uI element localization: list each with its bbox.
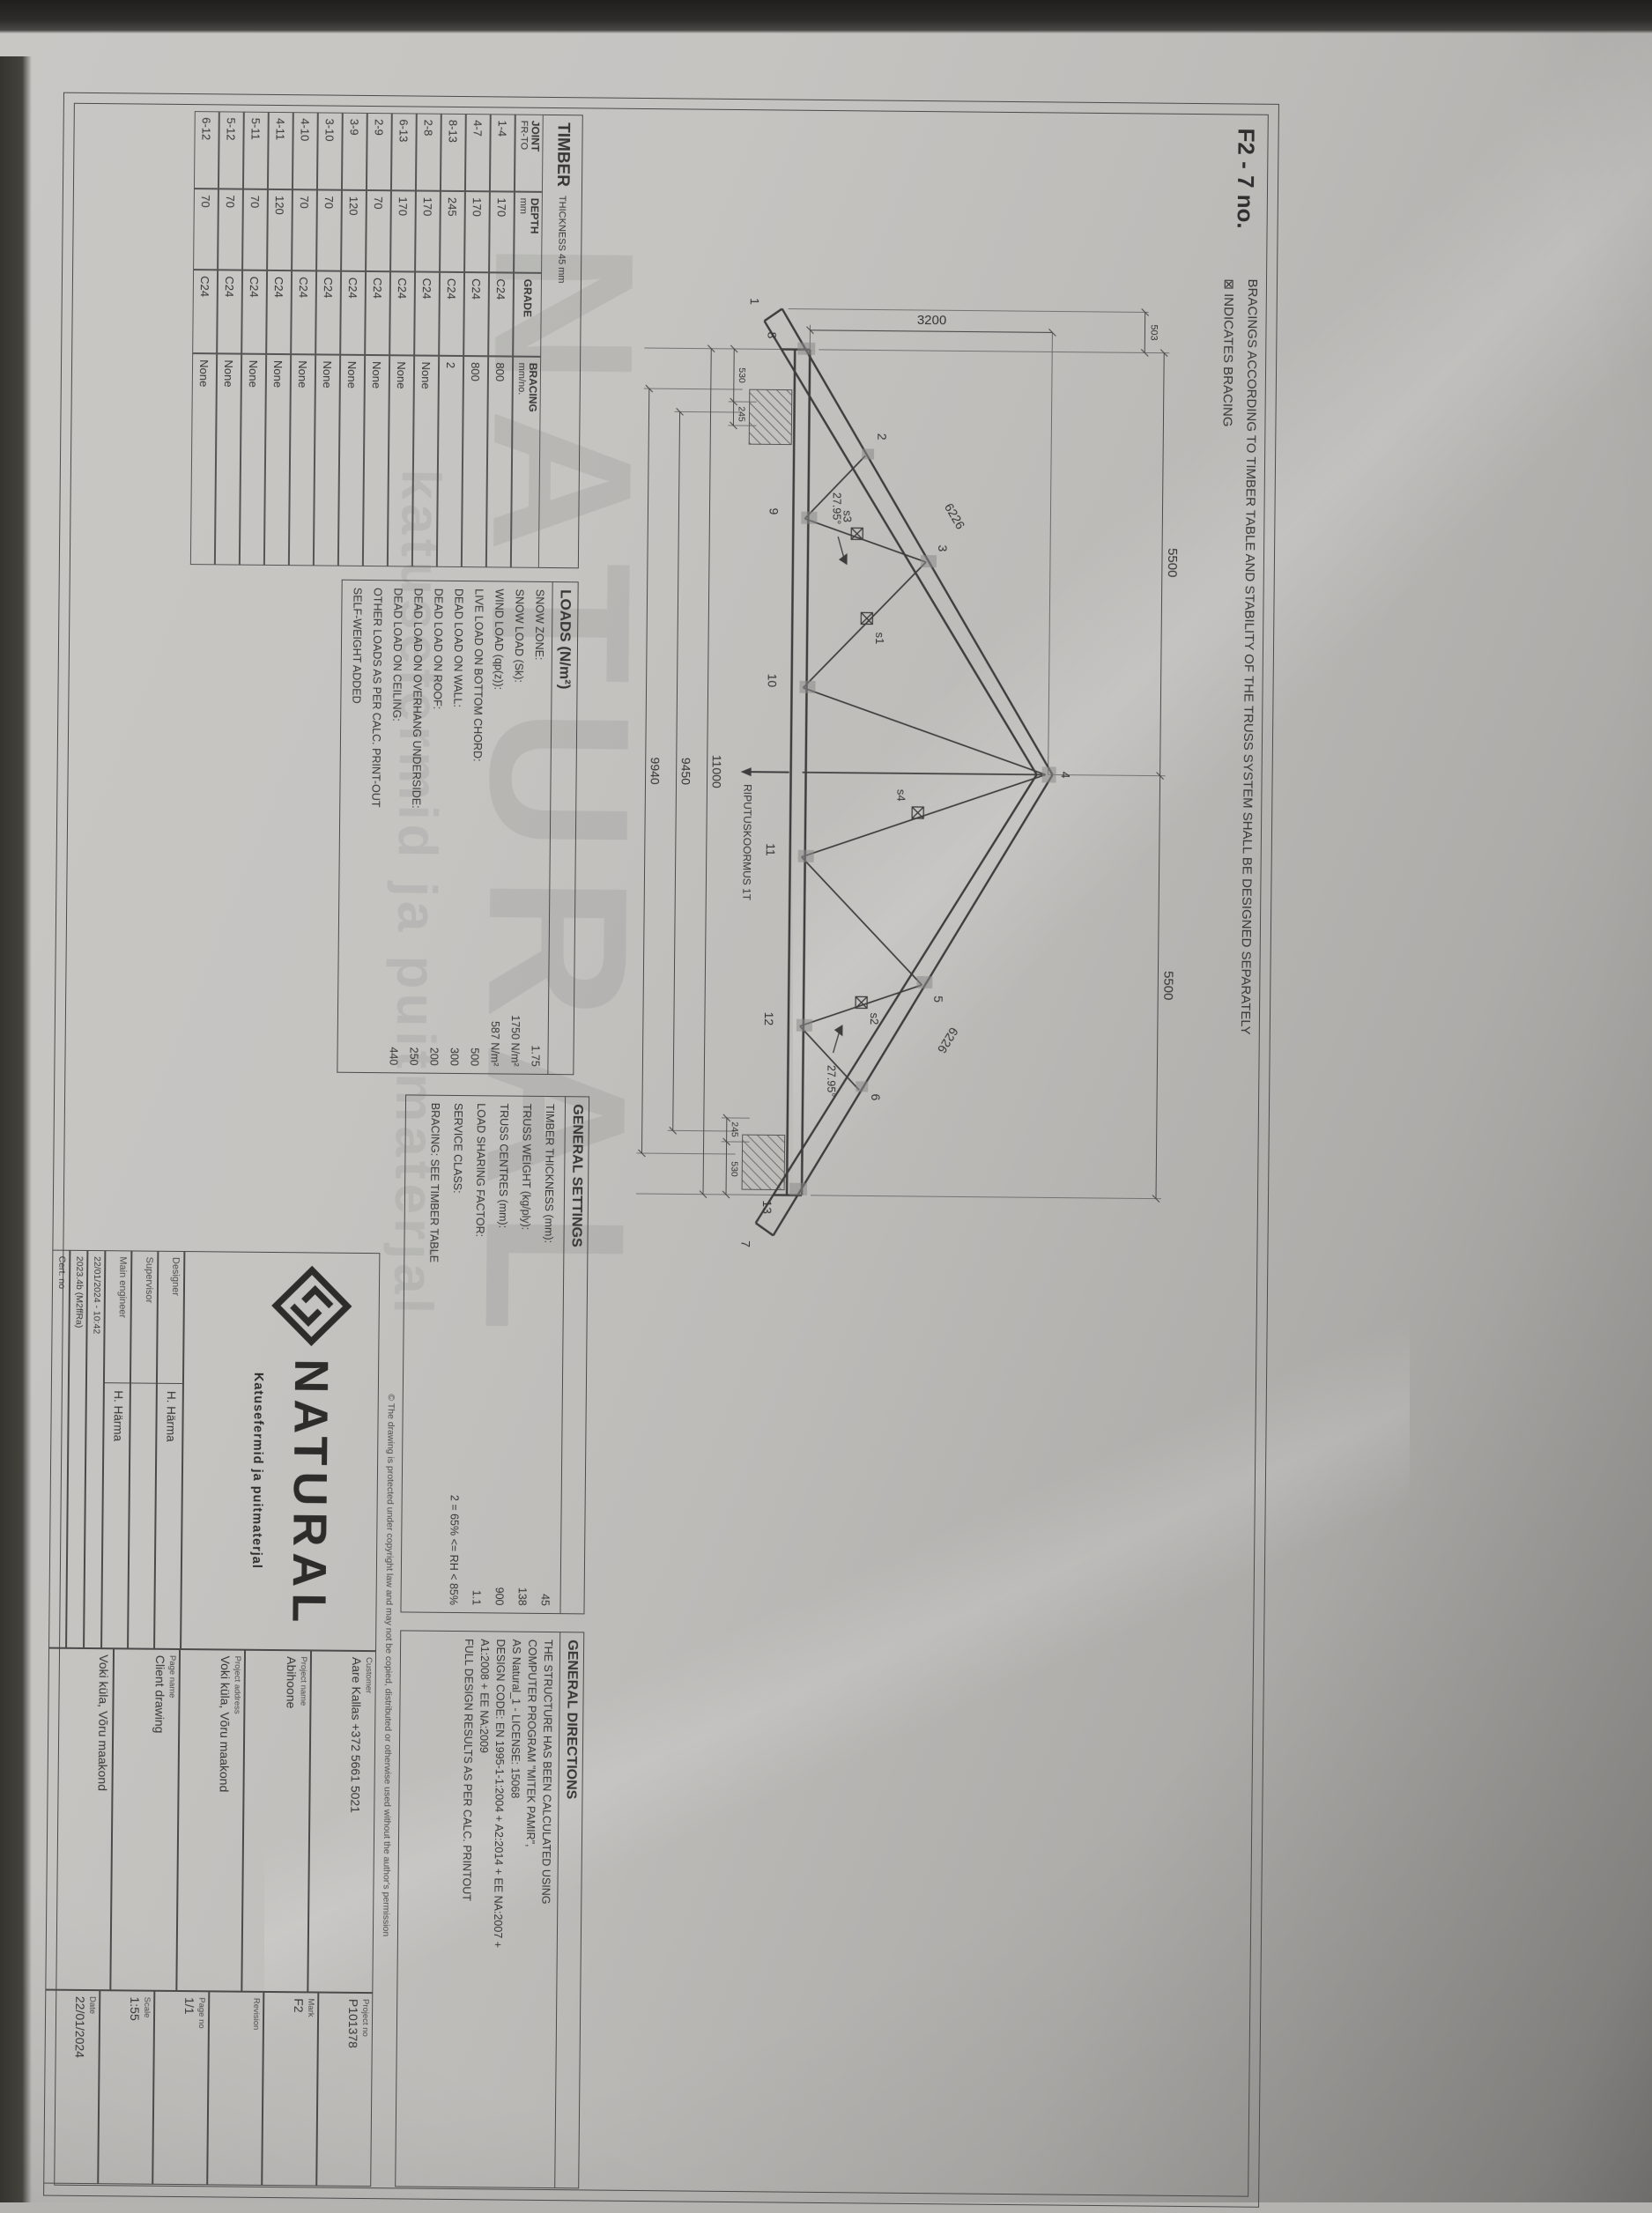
timber-row-grade: C24	[266, 270, 292, 354]
timber-row-bracing: None	[388, 355, 414, 566]
timber-row-grade: C24	[315, 270, 341, 354]
joint-4: 4	[1059, 772, 1073, 779]
timber-row-joint: 6-12	[194, 111, 219, 189]
general-settings-title: GENERAL SETTINGS	[567, 1104, 585, 1247]
timber-row-grade: C24	[217, 270, 242, 353]
loads-row-label: SNOW LOAD (Sk):	[508, 589, 530, 683]
loads-row-value: 200	[423, 1047, 443, 1066]
general-settings-label: TRUSS CENTRES (mm):	[492, 1103, 515, 1228]
timber-row-depth: 120	[341, 190, 367, 271]
timber-row-joint: 6-13	[391, 113, 417, 190]
timber-row-joint: 2-8	[416, 114, 441, 191]
background-table-edge-top	[0, 0, 1652, 33]
loads-row-label: SELF-WEIGHT ADDED	[345, 588, 367, 704]
title-block-field: Project noP101378	[316, 1993, 373, 2187]
general-settings-label: TRUSS WEIGHT (kg/ply):	[515, 1104, 538, 1231]
timber-row-bracing: None	[215, 353, 241, 565]
joint-7: 7	[738, 1240, 752, 1247]
field-value: 1/1	[180, 1997, 196, 2179]
general-settings-row: TIMBER THICKNESS (mm):45	[534, 1104, 561, 1606]
natural-logo-icon	[270, 1265, 352, 1347]
timber-row-depth: 70	[366, 190, 391, 271]
dim-overhang: 503	[1148, 324, 1159, 340]
loads-row-label: LIVE LOAD ON BOTTOM CHORD:	[467, 588, 489, 762]
general-settings-value: 1.1	[465, 1590, 488, 1606]
timber-table: TIMBER THICKNESS 45 mm JOINTFR-TO DEPTHm…	[190, 111, 583, 568]
title-block-brand: NATURAL	[281, 1358, 338, 1629]
staff-label: Main engineer	[105, 1251, 130, 1383]
timber-row-joint: 2-9	[367, 113, 392, 190]
general-settings-row: LOAD SHARING FACTOR:1.1	[465, 1103, 493, 1605]
title-block-staff-row: DesignerH. Härma	[154, 1251, 184, 1649]
joint-13: 13	[760, 1200, 774, 1214]
loads-row-label: DEAD LOAD ON ROOF:	[426, 588, 448, 710]
timber-row-grade: C24	[291, 270, 316, 354]
angle-arrows	[833, 537, 848, 1053]
timber-row-depth: 170	[464, 191, 490, 272]
field-label: Date	[85, 1996, 97, 2178]
joint-5: 5	[931, 995, 945, 1003]
dimension-lines	[638, 304, 1168, 1203]
col-header-bracing: BRACINGmm/no.	[511, 357, 541, 568]
dim-half-span-left: 5500	[1165, 548, 1180, 578]
field-value: Aare Kallas +372 5661 5021	[345, 1657, 364, 1987]
field-value: 22/01/2024	[70, 1996, 87, 2178]
timber-row-depth: 70	[242, 189, 268, 270]
field-label: Page no	[195, 1997, 206, 2179]
staff-value: H. Härma	[157, 1384, 182, 1449]
timber-row-grade: C24	[488, 272, 514, 356]
timber-row-depth: 170	[415, 191, 441, 272]
timber-row-bracing: None	[314, 354, 340, 566]
truss-webs	[799, 455, 1048, 1092]
timber-row-depth: 245	[440, 191, 465, 272]
general-directions-table: GENERAL DIRECTIONS THE STRUCTURE HAS BEE…	[395, 1630, 584, 2188]
title-block-field: Page no1/1	[152, 1991, 209, 2186]
loads-row-label: DEAD LOAD ON CEILING:	[386, 588, 407, 722]
timber-row-grade: C24	[365, 271, 390, 355]
joint-s4: s4	[894, 789, 907, 802]
loads-title: LOADS (N/m²)	[556, 589, 574, 690]
dim-half-span-right: 5500	[1160, 971, 1175, 1001]
general-settings-value: 900	[488, 1587, 511, 1605]
joint-1: 1	[748, 298, 762, 305]
timber-row-joint: 5-12	[219, 111, 244, 189]
timber-row-bracing: None	[338, 355, 365, 566]
timber-row-grade: C24	[241, 270, 267, 354]
loads-row-value: 300	[443, 1047, 463, 1066]
dim-heel-right-a: 245	[730, 1121, 740, 1137]
field-value: Abihoone	[280, 1656, 299, 1986]
dim-chord-left: 6226	[942, 500, 968, 531]
timber-row-depth: 70	[193, 189, 219, 270]
timber-row-joint: 4-7	[465, 114, 491, 191]
title-block-field: Project addressVoki küla, Võru maakond	[176, 1649, 245, 1992]
timber-row-bracing: None	[289, 354, 315, 566]
timber-row-bracing: None	[190, 353, 217, 565]
title-block-field: CustomerAare Kallas +372 5661 5021	[307, 1650, 376, 1993]
staff-label: Supervisor	[131, 1251, 157, 1383]
loads-row-label: DEAD LOAD ON WALL:	[447, 588, 468, 707]
drawing-sheet: NATURAL katusefermid ja puitmaterjal F2 …	[34, 87, 1288, 2213]
general-settings-label: TIMBER THICKNESS (mm):	[537, 1104, 561, 1243]
general-directions-title: GENERAL DIRECTIONS	[562, 1639, 580, 1799]
timber-row-grade: C24	[414, 271, 440, 355]
joint-s3: s3	[841, 510, 854, 522]
field-label: Revision	[249, 1998, 261, 2180]
joint-s1: s1	[873, 633, 886, 645]
timber-row-bracing: 800	[486, 356, 513, 567]
truss-mark-label: F2 - 7 no.	[1232, 128, 1260, 228]
timber-row-depth: 70	[292, 189, 317, 270]
field-value: Voki küla, Võru maakond	[93, 1654, 112, 1984]
loads-row-label: SNOW ZONE:	[529, 589, 550, 661]
joint-3: 3	[936, 544, 950, 551]
hanging-load-arrow	[741, 767, 789, 777]
staff-value	[131, 1383, 156, 1397]
title-block-field: Date22/01/2024	[43, 1990, 100, 2185]
title-block-field: Page nameClient drawing	[111, 1648, 180, 1991]
loads-row-label: OTHER LOADS AS PER CALC. PRINT-OUT	[365, 588, 387, 808]
loads-row-value: 1.75	[524, 1045, 544, 1067]
joint-s2: s2	[868, 1012, 881, 1025]
title-block-logo-cell: NATURAL Katusefermid ja puitmaterjal	[181, 1251, 380, 1651]
col-header-depth: DEPTHmm	[514, 192, 543, 273]
field-value: Client drawing	[149, 1655, 167, 1985]
title-block-field: Scale1:55	[98, 1990, 154, 2185]
timber-row-grade: C24	[389, 271, 415, 355]
timber-row-depth: 170	[390, 190, 416, 271]
timber-row-bracing: 2	[437, 356, 463, 567]
dim-bottom-3: 9940	[648, 757, 662, 785]
general-settings-row: SERVICE CLASS:2 = 65% <= RH < 85%	[442, 1103, 470, 1605]
loads-row-value: 587 N/m²	[484, 1021, 504, 1067]
timber-row-joint: 4-10	[293, 112, 318, 189]
timber-row-grade: C24	[439, 272, 464, 356]
joint-9: 9	[767, 507, 781, 514]
timber-row-joint: 4-11	[268, 112, 293, 189]
general-settings-label: SERVICE CLASS:	[446, 1103, 470, 1194]
dim-heel-right-b: 530	[729, 1161, 739, 1177]
dim-chord-right: 6226	[935, 1025, 961, 1055]
timber-row-bracing: None	[264, 354, 291, 566]
timber-row-bracing: None	[412, 355, 439, 566]
joint-10: 10	[766, 674, 780, 688]
col-header-grade: GRADE	[513, 273, 542, 357]
dim-height: 3200	[917, 313, 947, 328]
joint-11: 11	[764, 843, 778, 856]
timber-row-bracing: None	[240, 354, 266, 566]
hanging-load-label: RIPUTUSKOORMUS 1T	[740, 784, 753, 901]
title-block-field: Revision	[207, 1991, 263, 2186]
field-value: 1:55	[125, 1996, 142, 2178]
timber-row-joint: 1-4	[490, 114, 515, 191]
dimension-extension-lines	[636, 307, 1170, 1199]
timber-row-grade: C24	[192, 270, 218, 353]
loads-row-label: DEAD LOAD ON OVERHANG UNDERSIDE:	[405, 588, 427, 808]
timber-row-grade: C24	[340, 271, 366, 355]
general-settings-value: 2 = 65% <= RH < 85%	[442, 1495, 466, 1605]
timber-row-grade: C24	[463, 272, 489, 356]
joint-6: 6	[869, 1093, 883, 1100]
loads-row-value: 250	[403, 1047, 423, 1066]
timber-row-joint: 3-9	[342, 113, 367, 190]
joint-8: 8	[765, 332, 779, 339]
field-value: F2	[289, 1998, 306, 2180]
joint-12: 12	[762, 1012, 776, 1026]
bracing-symbols	[847, 528, 926, 1009]
angle-right: 27.95°	[825, 1065, 837, 1097]
title-block-brand-tagline: Katusefermid ja puitmaterjal	[248, 1373, 265, 1644]
field-label: Mark	[304, 1998, 315, 2180]
timber-row-joint: 5-11	[243, 112, 269, 189]
timber-table-title: TIMBER	[552, 122, 573, 187]
joint-2: 2	[875, 433, 889, 440]
timber-row-bracing: None	[363, 355, 389, 566]
field-value: P101378	[344, 1999, 360, 2180]
general-settings-label: LOAD SHARING FACTOR:	[469, 1103, 493, 1237]
timber-row-joint: 3-10	[317, 112, 343, 189]
staff-label: Designer	[158, 1252, 183, 1384]
timber-table-thickness: THICKNESS 45 mm	[556, 196, 567, 284]
field-label: Project no	[359, 1999, 370, 2180]
loads-row-value: 440	[382, 1047, 403, 1065]
title-block-staff-row: Supervisor	[128, 1250, 158, 1648]
title-block-field: MarkF2	[262, 1992, 318, 2187]
dim-heel-left-a: 530	[737, 367, 747, 383]
loads-row-value: 500	[463, 1047, 484, 1066]
staff-value: H. Härma	[104, 1383, 130, 1448]
timber-row-depth: 70	[218, 189, 243, 270]
support-wall-left	[749, 389, 792, 444]
col-header-joint: JOINTFR-TO	[515, 115, 544, 192]
timber-row-joint: 8-13	[441, 114, 466, 191]
timber-row-depth: 170	[489, 191, 515, 272]
title-block-staff-row: Main engineerH. Härma	[101, 1250, 131, 1648]
general-settings-row: TRUSS CENTRES (mm):900	[488, 1103, 515, 1605]
timber-row-depth: 120	[267, 189, 293, 270]
loads-row-value: 1750 N/m²	[504, 1015, 525, 1067]
title-block-field: Project nameAbihoone	[242, 1650, 311, 1993]
timber-row-depth: 70	[316, 189, 342, 270]
loads-row-label: WIND LOAD (qp(z)):	[488, 588, 509, 690]
field-value: Voki küla, Võru maakond	[215, 1655, 233, 1985]
support-wall-right	[742, 1135, 785, 1189]
background-table-edge-left	[0, 56, 32, 2202]
general-settings-row: TRUSS WEIGHT (kg/ply):138	[511, 1104, 538, 1606]
dim-heel-left-b: 245	[736, 406, 746, 422]
general-settings-label: BRACING: SEE TIMBER TABLE	[422, 1103, 447, 1263]
title-block-field: Voki küla, Võru maakond	[45, 1648, 114, 1991]
dim-bottom-2: 9450	[678, 758, 693, 786]
general-settings-table: GENERAL SETTINGS TIMBER THICKNESS (mm):4…	[400, 1094, 589, 1614]
dim-bottom-1: 11000	[709, 755, 723, 788]
general-settings-value: 138	[511, 1588, 534, 1606]
field-label: Scale	[140, 1997, 152, 2179]
truss-drawing: 5500 5500 503 3200 6226 6226 27.95° 27.9…	[606, 216, 1234, 1403]
general-settings-value: 45	[534, 1594, 557, 1606]
timber-row-bracing: 800	[462, 356, 488, 567]
loads-table: LOADS (N/m²) SNOW ZONE:1.75SNOW LOAD (Sk…	[337, 580, 578, 1076]
